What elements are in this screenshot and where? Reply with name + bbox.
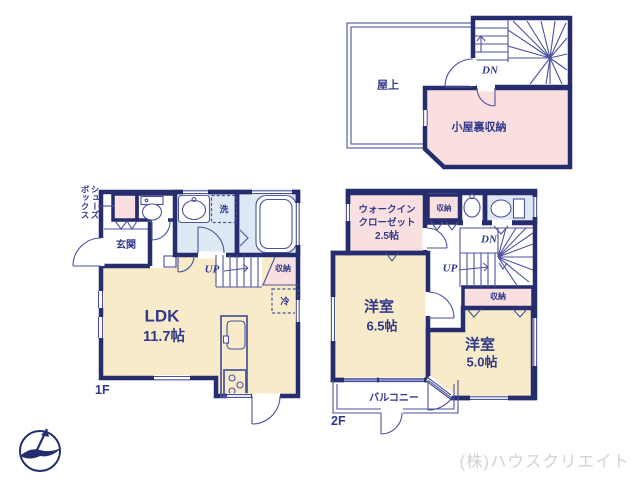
terrace-door-arc	[445, 58, 477, 87]
roof-dn-label: DN	[482, 66, 498, 77]
entrance-door-arc	[73, 238, 105, 266]
f1-ldk-label: LDK	[145, 308, 180, 325]
f2-floor-label: 2F	[331, 415, 346, 428]
f2-bedroom-65	[333, 253, 428, 380]
f1-shoebox-label-col1: シューズ	[90, 185, 100, 233]
f1-ldk-size-label: 11.7帖	[143, 330, 185, 345]
toilet2-icon	[491, 199, 525, 218]
f2-bedroom1-size-label: 6.5帖	[366, 320, 397, 333]
roof-attic-label: 小屋裏収納	[452, 123, 507, 134]
f2-closet-top-label: 収納	[437, 204, 452, 212]
floorplan-drawing	[0, 0, 640, 480]
f1-entrance-label: 玄関	[116, 241, 136, 251]
roof-stairwell	[473, 18, 570, 87]
f2-wic-size-label: 2.5帖	[375, 232, 399, 242]
f1-up-label: UP	[205, 265, 220, 276]
f2-bedroom2-label: 洋室	[465, 338, 495, 353]
floorplan-canvas: 屋上 小屋裏収納 DN シューズ ボックス 玄関 洗 UP 収納 冷 LDK 1…	[0, 0, 640, 480]
roof-plan	[347, 18, 570, 167]
f1-stair-storage-label: 収納	[275, 265, 291, 273]
attic-window	[423, 110, 429, 126]
f2-wic-label-line1: ウォークイン	[358, 205, 415, 215]
f2-bedroom1-label: 洋室	[364, 300, 394, 315]
f2-bedroom2-size-label: 5.0帖	[466, 356, 497, 369]
f2-balcony-label: バルコニー	[369, 394, 419, 404]
f1-shoebox-label-col2: ボックス	[80, 185, 90, 233]
f1-shoebox-label: シューズ ボックス	[80, 185, 100, 233]
toilet-icon	[141, 197, 163, 221]
balcony-door-arc	[381, 408, 403, 434]
f2-dn-label: DN	[481, 235, 497, 246]
company-watermark: (株)ハウスクリエイト	[460, 448, 631, 472]
bathtub-icon	[256, 196, 296, 253]
f2-closet-stairs-label: 収納	[490, 293, 506, 301]
f1-floor-label: 1F	[95, 384, 110, 397]
f1-shoebox	[113, 194, 137, 220]
north-compass	[20, 429, 61, 471]
roof-terrace-label: 屋上	[377, 81, 399, 92]
f1-laundry-label: 洗	[219, 206, 228, 215]
f2-wic-label-line2: クローゼット	[358, 218, 415, 228]
vanity-sink-icon	[179, 196, 210, 223]
f2-up-label: UP	[443, 264, 458, 275]
back-door-arc	[252, 394, 280, 425]
f1-fridge-label: 冷	[280, 298, 289, 307]
